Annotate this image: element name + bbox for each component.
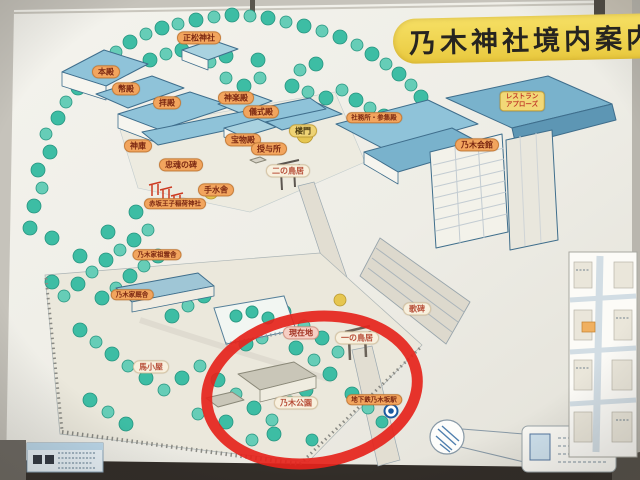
- label-temizuya: 手水舎: [198, 183, 234, 196]
- label-restaurant-line2: アプローズ: [506, 101, 539, 109]
- label-kaguraden: 神楽殿: [218, 91, 254, 104]
- label-ni-no-torii: 二の鳥居: [266, 164, 310, 177]
- label-heiden: 幣殿: [112, 82, 140, 95]
- label-shinko: 神庫: [124, 139, 152, 152]
- signboard-photo: 乃木神社境内案内図 正松神社 本殿 幣殿 拝殿 神楽殿 儀式殿 楼門 社務所・参…: [0, 0, 640, 480]
- label-nogike-kyusha: 乃木家厩舎: [111, 289, 154, 300]
- label-umagoya: 馬小屋: [133, 360, 169, 373]
- label-nogike-soreisha: 乃木家祖霊舎: [133, 249, 182, 260]
- label-juyosho: 授与所: [251, 142, 287, 155]
- label-gishikiden: 儀式殿: [243, 105, 279, 118]
- label-haiden: 拝殿: [153, 96, 181, 109]
- label-nogi-kaikan: 乃木会館: [455, 138, 499, 151]
- label-ichi-no-torii: 一の鳥居: [335, 331, 379, 344]
- label-akasaka-oji-inari-jinja: 赤坂王子稲荷神社: [144, 198, 206, 209]
- sign-title: 乃木神社境内案内図: [409, 15, 640, 60]
- label-chukon-no-hi: 忠魂の碑: [159, 158, 203, 171]
- label-seisho-jinja: 正松神社: [177, 31, 221, 44]
- label-genzaichi: 現在地: [283, 326, 319, 339]
- label-kahi: 歌碑: [403, 302, 431, 315]
- label-chikatetsu-nogizaka-eki: 地下鉄乃木坂駅: [346, 394, 402, 405]
- label-romon: 楼門: [289, 124, 317, 137]
- label-honden: 本殿: [92, 65, 120, 78]
- label-shamusho-sanshuden: 社務所・参集殿: [346, 112, 402, 123]
- sign-title-banner: 乃木神社境内案内図: [393, 13, 640, 64]
- label-nogi-koen: 乃木公園: [274, 396, 318, 409]
- label-restaurant: レストラン アプローズ: [500, 91, 545, 111]
